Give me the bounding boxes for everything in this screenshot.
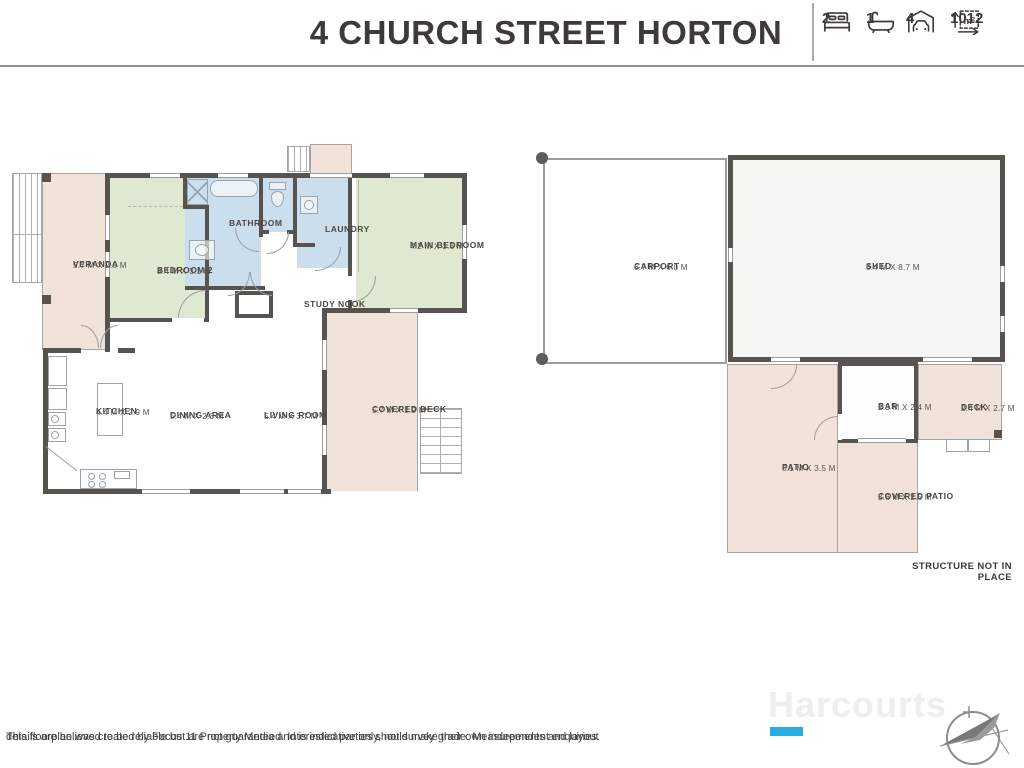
sink <box>51 431 59 439</box>
entry-landing <box>310 144 352 174</box>
door-arc <box>267 232 289 254</box>
window <box>858 438 906 443</box>
shower <box>187 179 208 205</box>
wall-segment <box>185 286 265 290</box>
deck-steps <box>946 439 968 452</box>
carport-post <box>536 152 548 164</box>
cars-count: 4 <box>906 10 914 27</box>
sink <box>304 200 314 210</box>
veranda-post <box>42 173 51 182</box>
patio-area <box>727 364 838 553</box>
sliding-door <box>390 308 418 313</box>
shed-area <box>728 155 1005 362</box>
deck-stairs <box>420 408 462 474</box>
door-opening <box>172 318 204 322</box>
bedroom2-area <box>107 177 183 209</box>
structure-note: STRUCTURE NOT IN PLACE <box>894 561 1012 583</box>
stair-line <box>12 234 42 235</box>
compass-icon <box>936 698 1010 768</box>
door-opening <box>838 414 842 440</box>
stair-line <box>440 408 441 474</box>
sink <box>195 244 209 256</box>
burner <box>99 481 106 488</box>
deck-area <box>918 364 1002 440</box>
window <box>288 489 321 494</box>
deck-steps <box>968 439 990 452</box>
beds-count: 2 <box>822 10 830 27</box>
brand-watermark: Harcourts <box>768 684 947 726</box>
wall-segment <box>293 177 297 237</box>
carport-post <box>536 353 548 365</box>
window <box>322 340 327 370</box>
wall-segment <box>259 177 263 237</box>
entry-door <box>310 173 352 178</box>
veranda-post <box>42 295 51 304</box>
wardrobe-line <box>128 206 183 207</box>
brand-accent-bar <box>770 727 803 736</box>
burner <box>99 473 106 480</box>
pantry-door-line <box>45 446 77 471</box>
header-rule <box>0 65 1024 67</box>
wall-segment <box>118 348 135 353</box>
veranda-stairs <box>12 173 42 283</box>
bathtub <box>210 180 258 197</box>
oven-panel <box>114 471 130 479</box>
shed-door <box>771 357 800 362</box>
wall-segment <box>43 348 81 353</box>
sink <box>51 415 59 423</box>
burner <box>88 481 95 488</box>
window <box>142 489 190 494</box>
cabinet <box>48 388 67 410</box>
covered-deck-area <box>326 312 418 491</box>
window <box>1000 316 1005 332</box>
window <box>150 173 180 178</box>
window <box>923 357 972 362</box>
baths-count: 1 <box>866 10 874 27</box>
wall-segment <box>297 243 315 247</box>
window <box>105 215 110 240</box>
window <box>1000 266 1005 282</box>
window <box>390 173 424 178</box>
window <box>322 425 327 455</box>
disclaimer-line: details are believed to be reliable but … <box>6 729 600 745</box>
window <box>240 489 284 494</box>
window <box>218 173 248 178</box>
area-value: 1012 <box>950 10 983 27</box>
entry-stairs <box>287 146 310 172</box>
window <box>728 248 733 262</box>
header-divider <box>812 3 814 61</box>
fridge <box>48 356 67 386</box>
deck-post <box>994 430 1002 438</box>
burner <box>88 473 95 480</box>
toilet <box>269 182 286 190</box>
floorplan-page: 4 CHURCH STREET HORTON 2 1 <box>0 0 1024 768</box>
page-title: 4 CHURCH STREET HORTON <box>310 14 782 52</box>
